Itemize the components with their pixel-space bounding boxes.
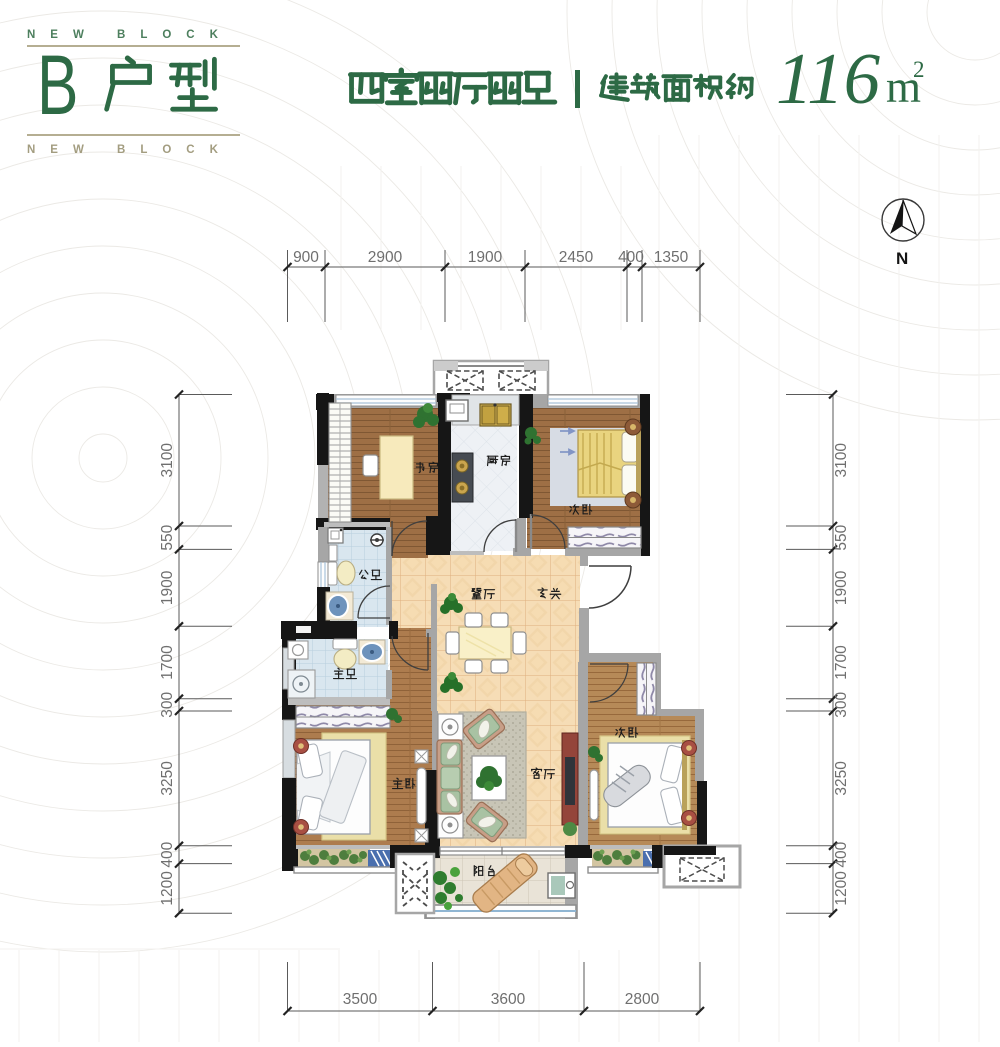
svg-text:3250: 3250 <box>159 761 176 796</box>
svg-text:300: 300 <box>833 692 850 718</box>
svg-text:2800: 2800 <box>625 991 660 1008</box>
svg-text:2450: 2450 <box>559 249 594 266</box>
svg-text:3500: 3500 <box>343 991 378 1008</box>
svg-text:1200: 1200 <box>833 871 850 906</box>
svg-text:1700: 1700 <box>833 645 850 680</box>
svg-text:1200: 1200 <box>159 871 176 906</box>
svg-text:300: 300 <box>159 692 176 718</box>
svg-text:2900: 2900 <box>368 249 403 266</box>
svg-text:1350: 1350 <box>654 249 689 266</box>
svg-text:3100: 3100 <box>833 443 850 478</box>
svg-text:550: 550 <box>159 524 176 550</box>
svg-text:1900: 1900 <box>833 570 850 605</box>
svg-text:1900: 1900 <box>159 570 176 605</box>
svg-text:NEW BLOCK: NEW BLOCK <box>27 144 233 156</box>
svg-text:N: N <box>896 249 908 268</box>
svg-text:400: 400 <box>618 249 644 266</box>
svg-text:116: 116 <box>776 38 881 119</box>
svg-text:550: 550 <box>833 524 850 550</box>
svg-text:3250: 3250 <box>833 761 850 796</box>
svg-text:1900: 1900 <box>468 249 503 266</box>
svg-text:400: 400 <box>159 841 176 867</box>
svg-text:B: B <box>37 38 78 132</box>
svg-text:3100: 3100 <box>159 443 176 478</box>
svg-text:900: 900 <box>293 249 319 266</box>
svg-text:400: 400 <box>833 841 850 867</box>
svg-text:2: 2 <box>913 57 925 82</box>
svg-text:1700: 1700 <box>159 645 176 680</box>
svg-text:3600: 3600 <box>491 991 526 1008</box>
